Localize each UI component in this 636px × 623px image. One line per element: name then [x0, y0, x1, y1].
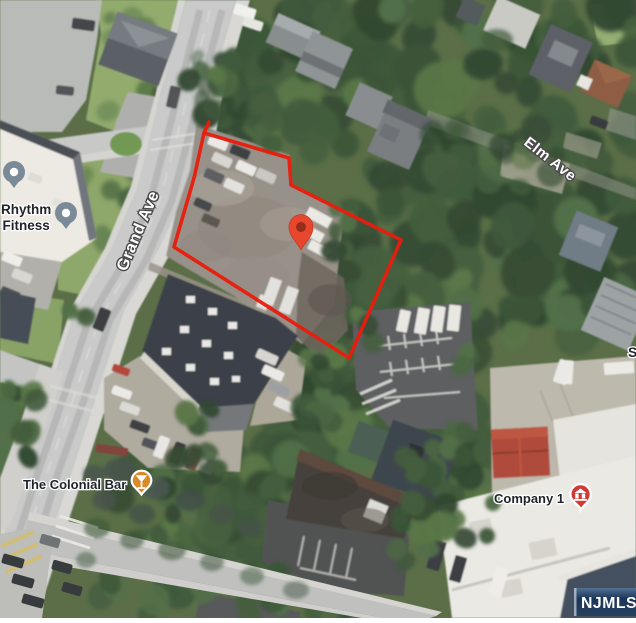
svg-text:l Fitness: l Fitness [0, 218, 50, 233]
svg-text:S: S [628, 344, 636, 360]
svg-text:The Colonial Bar: The Colonial Bar [23, 477, 126, 492]
svg-text:Rhythm: Rhythm [1, 202, 51, 217]
svg-text:NJMLS: NJMLS [581, 595, 636, 612]
svg-text:Company 1: Company 1 [494, 491, 564, 506]
